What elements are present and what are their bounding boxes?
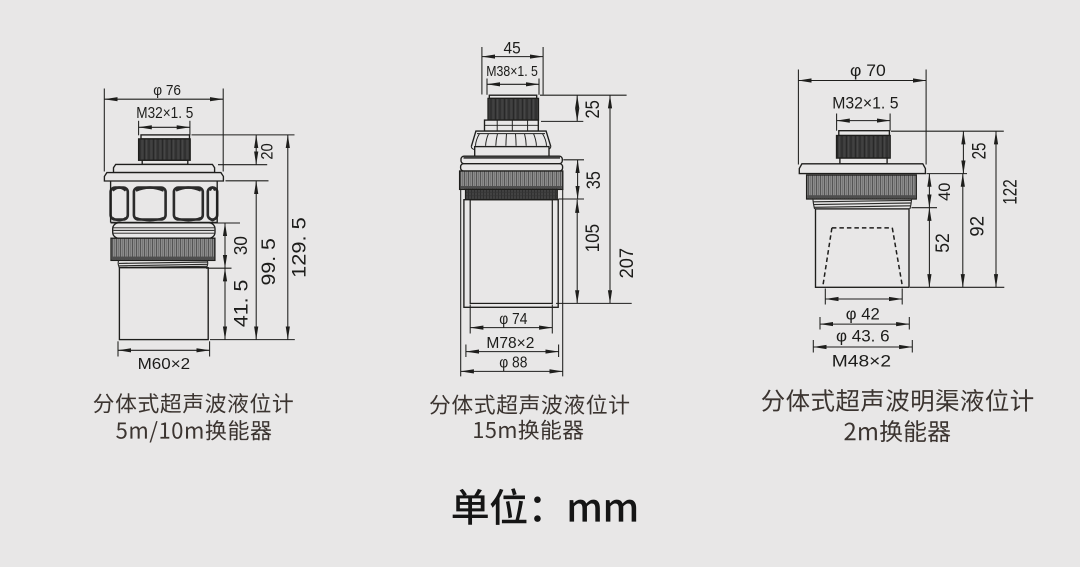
svg-text:φ 43. 6: φ 43. 6 xyxy=(836,328,890,346)
svg-text:35: 35 xyxy=(584,171,605,189)
svg-text:φ 76: φ 76 xyxy=(153,82,181,99)
svg-text:25: 25 xyxy=(970,143,991,160)
svg-text:φ 74: φ 74 xyxy=(499,311,528,328)
svg-text:M32×1. 5: M32×1. 5 xyxy=(136,105,193,122)
svg-text:30: 30 xyxy=(231,236,251,255)
svg-text:M38×1. 5: M38×1. 5 xyxy=(486,64,538,80)
svg-text:92: 92 xyxy=(967,216,988,237)
svg-text:45: 45 xyxy=(504,40,521,58)
svg-text:99. 5: 99. 5 xyxy=(258,238,280,286)
svg-text:52: 52 xyxy=(933,233,954,253)
svg-text:40: 40 xyxy=(935,183,954,201)
svg-text:M32×1. 5: M32×1. 5 xyxy=(832,93,898,112)
svg-text:M48×2: M48×2 xyxy=(832,352,891,371)
svg-text:129. 5: 129. 5 xyxy=(289,217,311,278)
svg-text:φ 70: φ 70 xyxy=(850,61,886,80)
svg-text:M78×2: M78×2 xyxy=(486,335,534,352)
svg-text:122: 122 xyxy=(999,179,1021,204)
svg-text:φ 88: φ 88 xyxy=(499,355,527,372)
svg-text:41. 5: 41. 5 xyxy=(231,280,252,327)
svg-text:φ 42: φ 42 xyxy=(846,305,880,323)
svg-text:207: 207 xyxy=(616,248,638,278)
svg-text:20: 20 xyxy=(257,143,276,159)
svg-text:M60×2: M60×2 xyxy=(138,356,191,373)
svg-text:105: 105 xyxy=(583,224,604,252)
svg-text:25: 25 xyxy=(583,100,604,118)
